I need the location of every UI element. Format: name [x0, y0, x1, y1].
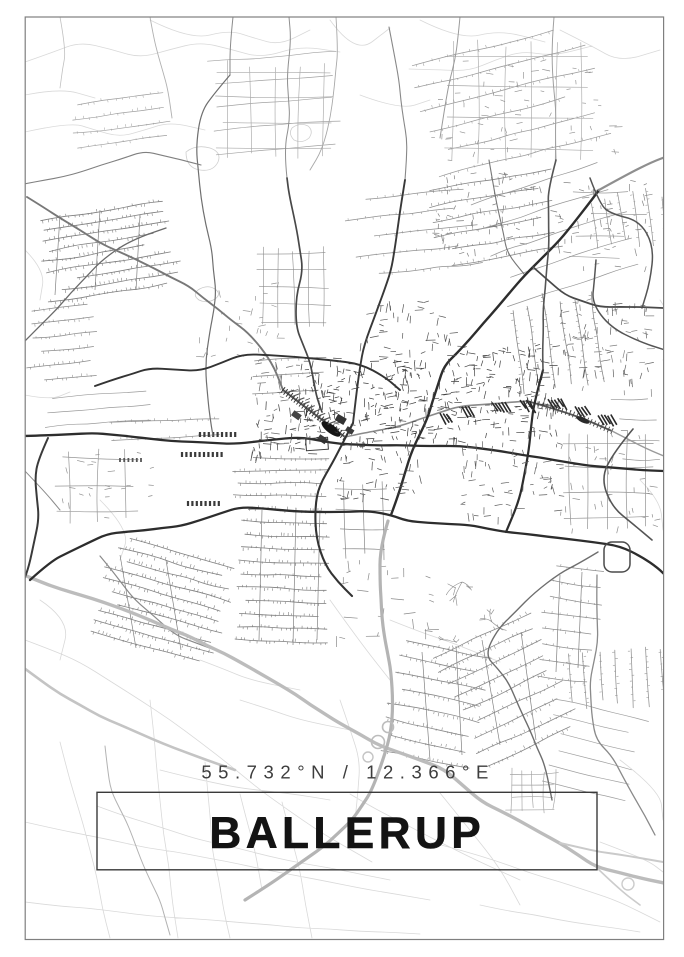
svg-text:55.732°N / 12.366°E: 55.732°N / 12.366°E	[201, 762, 495, 783]
svg-text:BALLERUP: BALLERUP	[209, 809, 485, 858]
